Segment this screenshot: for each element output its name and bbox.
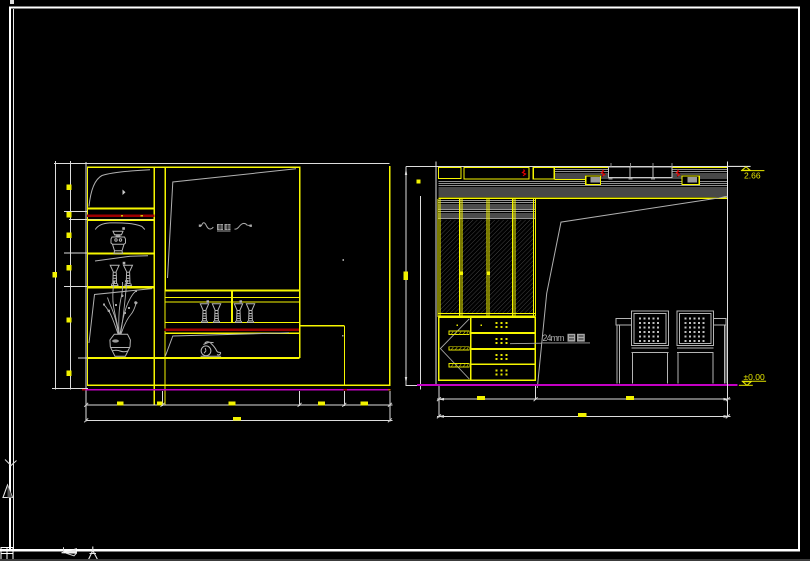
svg-text:±0.00: ±0.00 bbox=[744, 372, 765, 382]
svg-text:24mm: 24mm bbox=[543, 333, 565, 343]
svg-text:2.66: 2.66 bbox=[744, 171, 761, 181]
